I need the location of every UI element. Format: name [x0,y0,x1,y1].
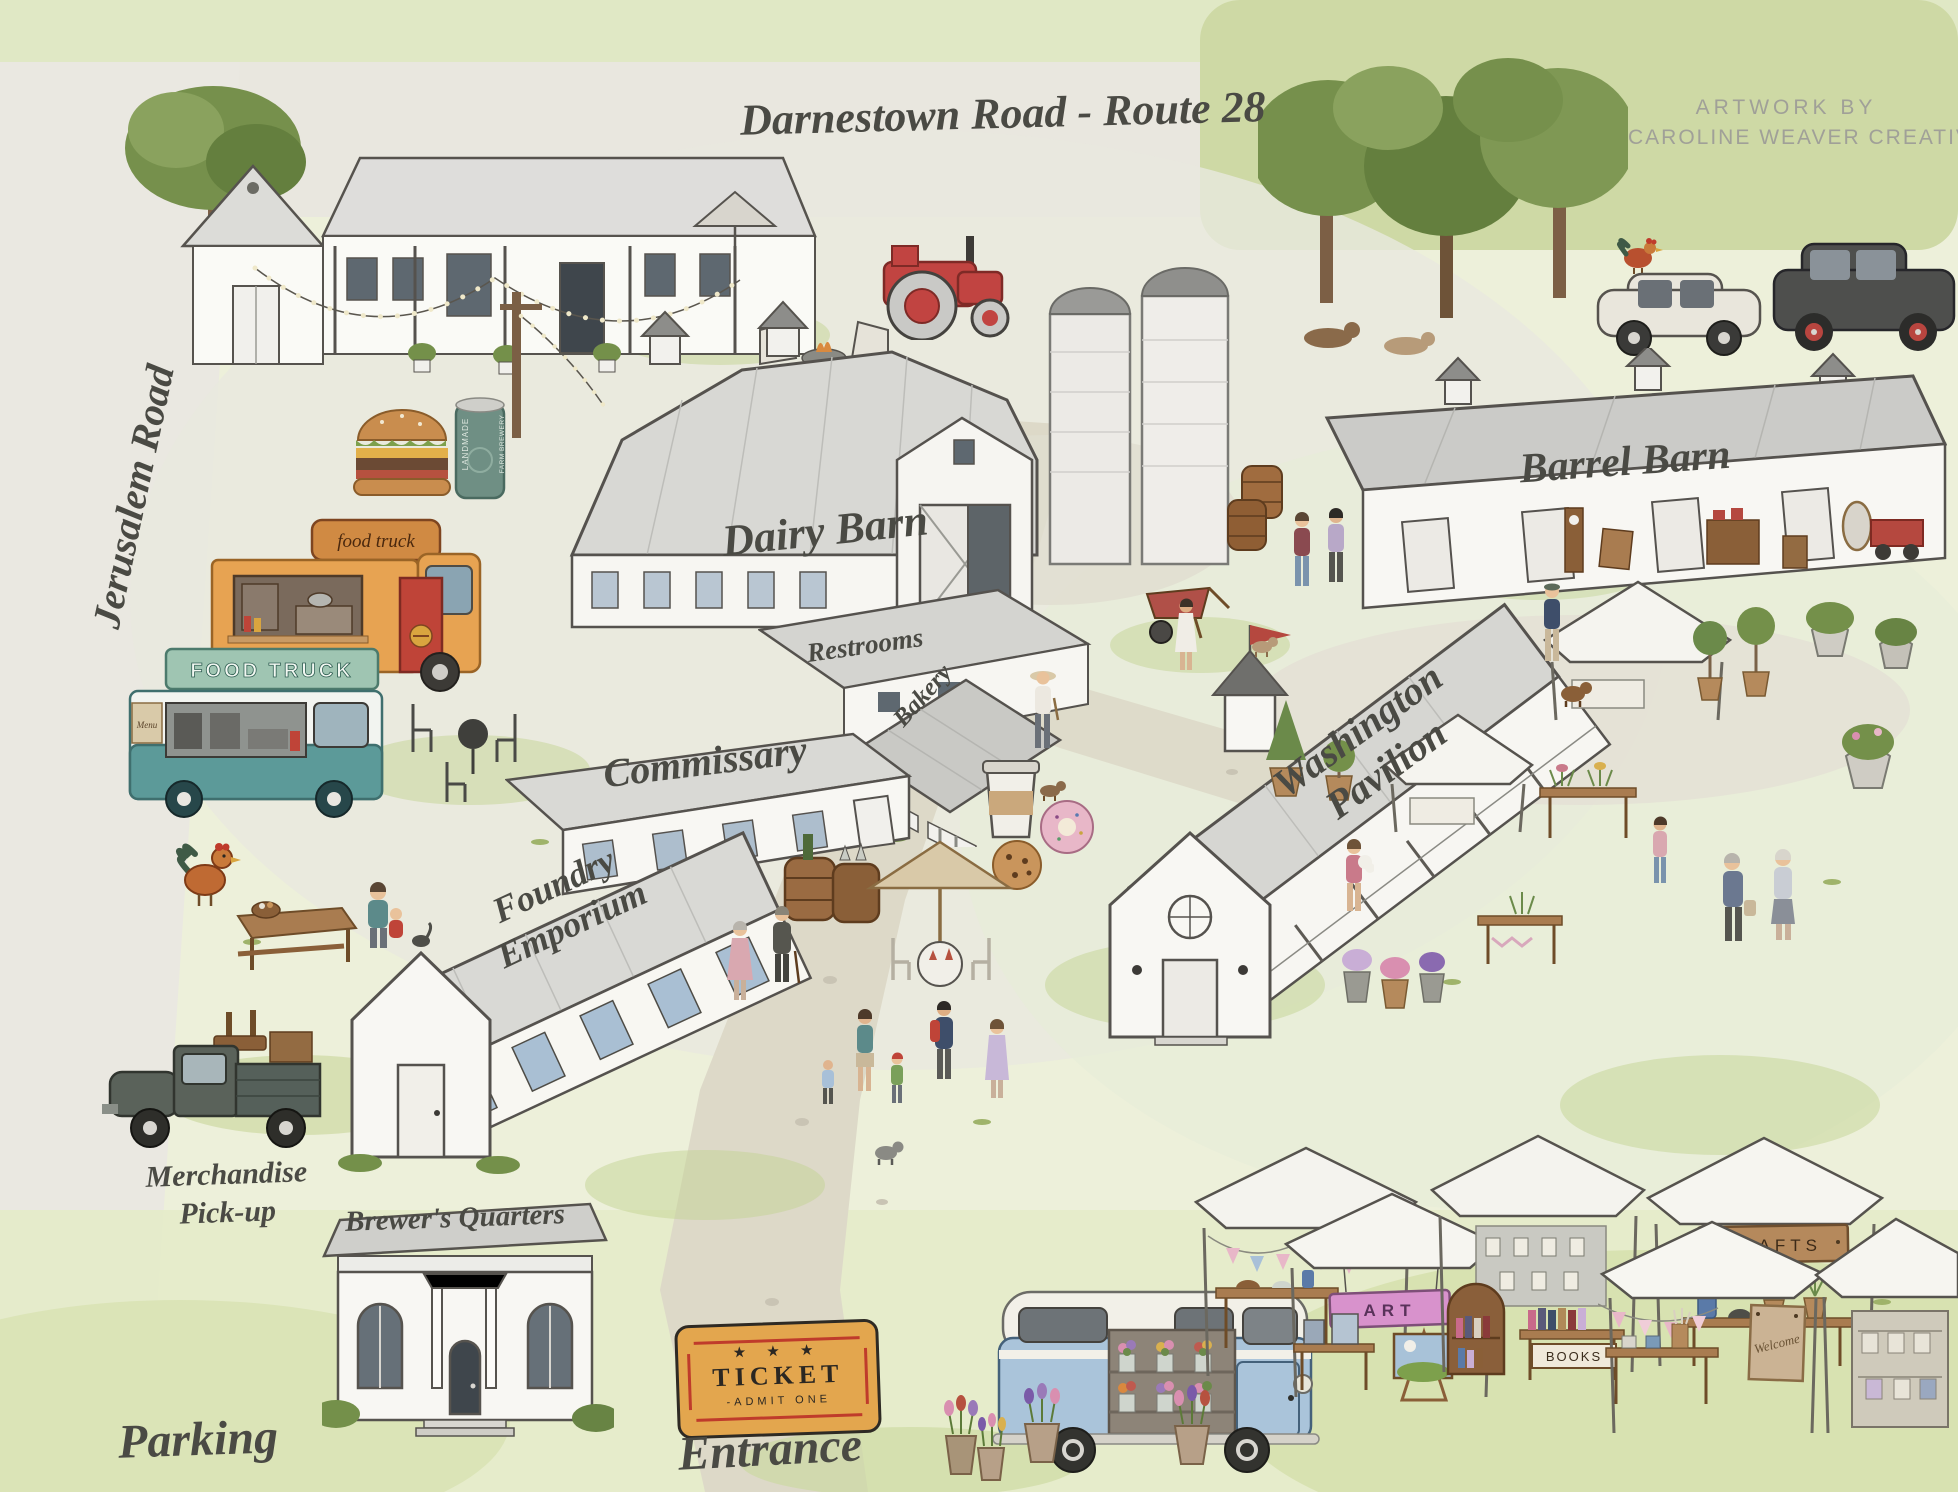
arched-bookshelf [1448,1284,1504,1374]
dog-figure [1248,632,1282,658]
person-figure [1168,598,1204,686]
label-parking: Parking [77,1408,319,1471]
cafe-chairs [395,670,560,815]
label-merchandise-line1: Merchandise [111,1152,342,1198]
vintage-cars [1588,228,1958,368]
burger-icon [354,410,450,495]
coffee-cup-icon [983,761,1039,837]
tree-cluster [1258,38,1628,378]
person-figure [816,1058,842,1116]
vendor-tent-cards [1812,1205,1958,1440]
person-figure [884,1052,912,1114]
barrels [1222,458,1288,563]
orange-truck-sign-text: food truck [337,531,415,552]
person-figure [1642,816,1678,902]
illustrated-map: Darnestown Road - Route 28 Jerusalem Roa… [0,0,1958,1492]
person-figure [978,1018,1016,1114]
person-figure [762,905,806,1011]
label-merchandise-pickup: Merchandise Pick-up [111,1152,343,1235]
merchandise-pickup-truck [98,992,333,1177]
tulip-pots [936,1366,1008,1486]
person-figure [1334,838,1374,930]
ticket-title: TICKET [678,1358,877,1395]
credit-line1: Artwork By [1628,96,1944,120]
person-figure [720,920,760,1012]
person-figure [845,1008,885,1106]
flower-pots-row [1342,949,1445,1008]
person-figure [1022,668,1064,768]
side-table [1478,892,1562,964]
person-figure [1710,852,1756,966]
can-label-line2: FARM BREWERY [499,415,506,474]
beer-can-icon: LANDMADE FARM BREWERY [456,398,506,498]
credit-line2: Caroline Weaver Creative [1628,126,1944,150]
person-figure [1316,508,1356,602]
umbrella-table [870,842,1010,986]
person-figure [922,1000,966,1104]
artwork-credit: Artwork By Caroline Weaver Creative [1628,96,1944,150]
person-figure [1762,848,1806,960]
stone-urns [1806,602,1917,668]
vendor-tent-welcome: Welcome [1598,1208,1833,1443]
dog-figure [1556,676,1596,708]
person-figure [389,908,403,938]
person-figure [368,882,388,948]
ticket-subtitle: -ADMIT ONE [680,1392,878,1411]
teal-food-truck: FOOD TRUCK Menu [118,645,406,833]
can-label-line1: LANDMADE [461,418,470,470]
topiary-row [1693,607,1775,700]
cupola [642,302,807,364]
goose-weathervane [412,923,431,947]
picnic-table [218,858,413,996]
rooster-icon [1619,238,1663,274]
wine-barrel-cafe [775,828,1045,1028]
person-figure [1532,582,1572,680]
dog-figure [870,1136,908,1166]
big-urn [1842,724,1894,788]
teal-truck-sign-text: FOOD TRUCK [190,660,353,682]
art-sign-text: ART [1364,1301,1417,1320]
donut-icon [1041,801,1093,853]
books-sign-text: BOOKS [1546,1349,1602,1364]
plant-tables [1540,762,1636,838]
menu-sign-text: Menu [136,720,158,730]
dog-figure [1036,776,1070,802]
burger-and-can-icons: LANDMADE FARM BREWERY [348,392,508,512]
